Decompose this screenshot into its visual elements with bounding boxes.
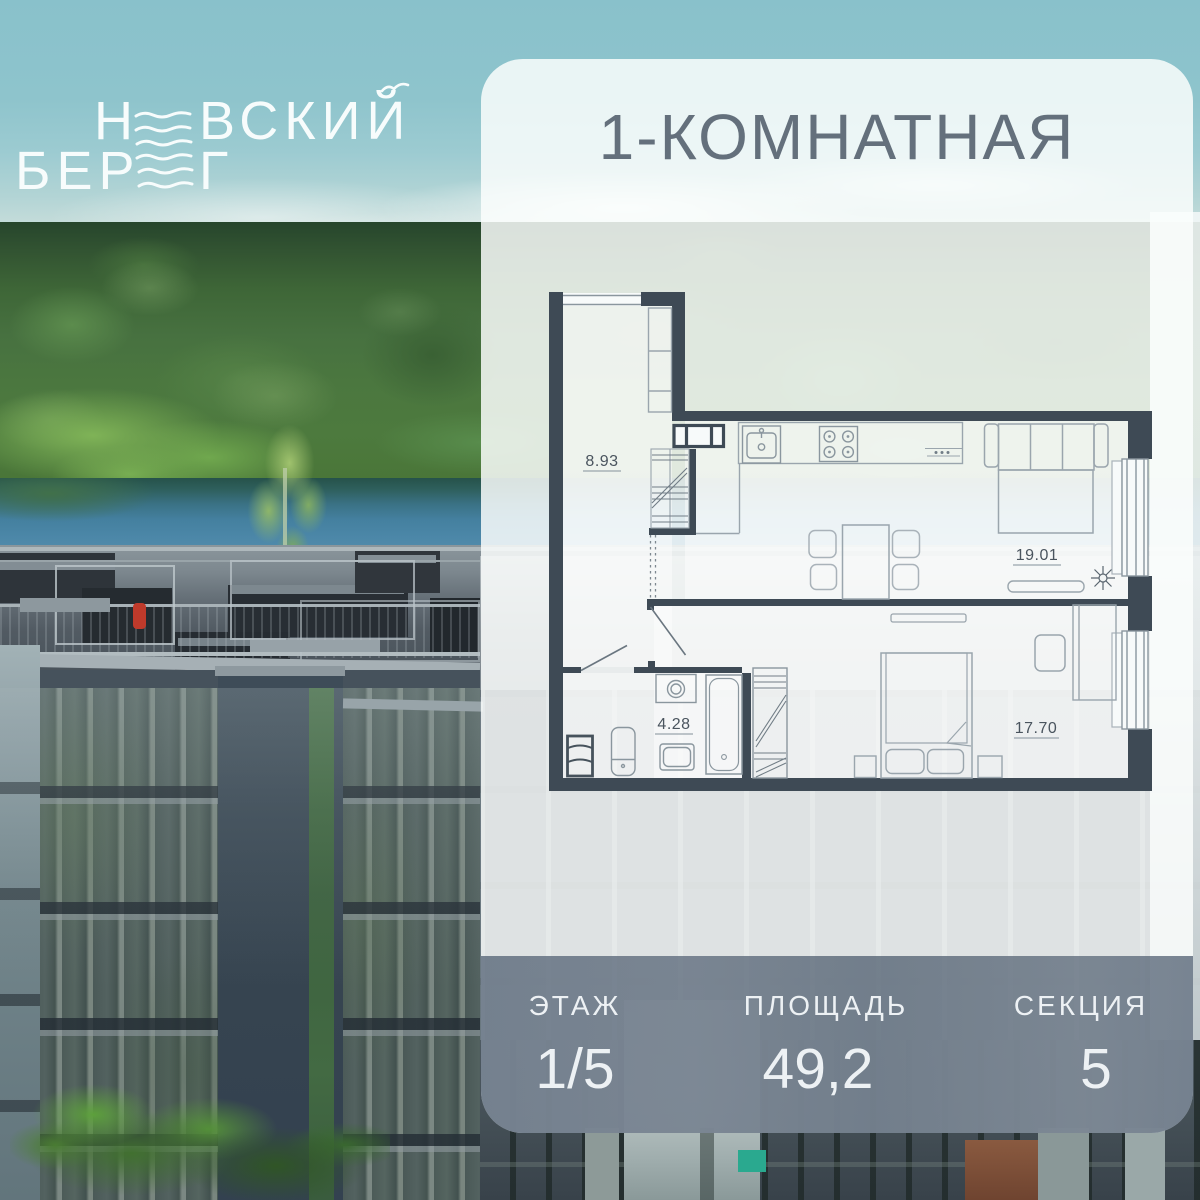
svg-text:8.93: 8.93 [585,453,618,470]
svg-text:17.70: 17.70 [1015,720,1058,737]
svg-text:4.28: 4.28 [657,716,690,733]
svg-text:19.01: 19.01 [1016,547,1059,564]
